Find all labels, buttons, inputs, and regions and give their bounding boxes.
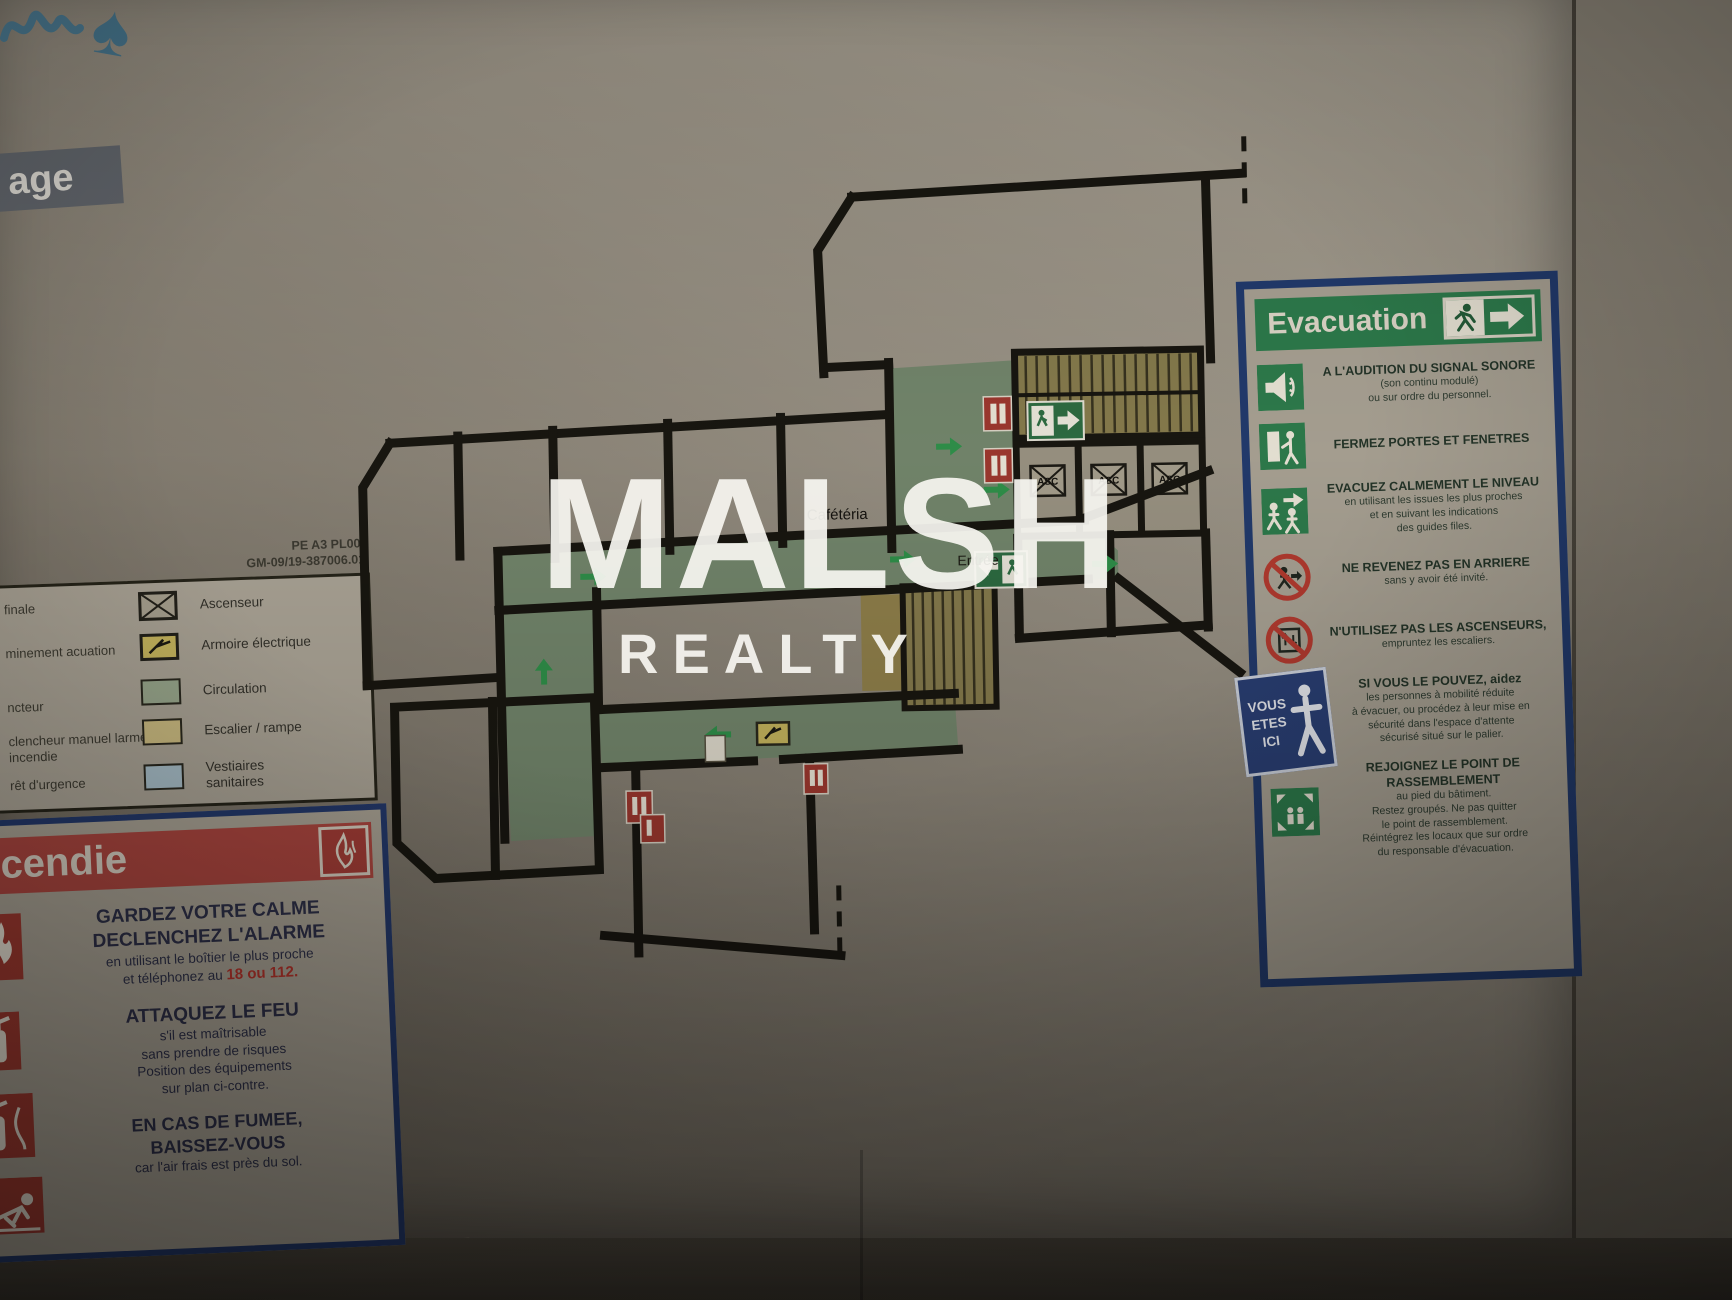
legend-item-ascenseur: Ascenseur xyxy=(137,585,320,621)
fire-s1-body2-text: et téléphonez au xyxy=(123,968,223,987)
exit-running-man-icon xyxy=(1442,294,1535,339)
legend-left-fragment: minement acuation xyxy=(5,641,155,662)
plan-small-label-box xyxy=(705,735,725,761)
legend-item-escalier: Escalier / rampe xyxy=(142,713,325,745)
room-label-cafeteria: Cafétéria xyxy=(807,506,869,524)
legend-left-fragment: finale xyxy=(4,597,154,618)
evac-item-heading: FERMEZ PORTES ET FENETRES xyxy=(1315,429,1547,453)
evac-item-no-elevator: N'UTILISEZ PAS LES ASCENSEURS, empruntez… xyxy=(1263,606,1555,666)
floor-plan: ASC ASC ASC xyxy=(322,110,1287,1006)
logo-squiggle xyxy=(4,15,80,38)
electrical-cabinet-icon xyxy=(139,632,180,661)
brand-logo-script: ♠ xyxy=(0,0,190,72)
floor-label-tab: age xyxy=(0,145,124,212)
crawl-low-icon xyxy=(0,1176,47,1237)
you-are-here-sign: VOUS ETES ICI xyxy=(1234,667,1338,777)
fire-extinguisher-flames-icon xyxy=(0,1093,37,1161)
evac-item-no-return: NE REVENEZ PAS EN ARRIERE sans y avoir é… xyxy=(1261,543,1553,603)
legend-item-circulation: Circulation xyxy=(140,673,323,705)
evacuate-people-icon xyxy=(1261,487,1309,535)
evac-item-evacuate: EVACUEZ CALMEMENT LE NIVEAU en utilisant… xyxy=(1259,473,1551,540)
legend-item-armoire: Armoire électrique xyxy=(139,627,322,661)
evac-item-assembly-point: REJOIGNEZ LE POINT DE RASSEMBLEMENT au p… xyxy=(1269,753,1562,864)
legend-left-fragment: ncteur xyxy=(7,695,157,716)
circulation-swatch xyxy=(140,678,181,705)
no-elevator-icon xyxy=(1263,614,1315,666)
plan-legend: finale minement acuation ncteur clencheu… xyxy=(0,573,378,816)
fire-panel-title: cendie xyxy=(0,838,128,888)
alarm-speaker-icon xyxy=(1257,364,1305,412)
close-door-icon xyxy=(1259,423,1307,471)
legend-item-vestiaires: Vestiaires sanitaires xyxy=(143,755,326,794)
fire-phone-numbers: 18 ou 112. xyxy=(226,963,298,983)
room-label-entree: Entrée xyxy=(957,552,999,569)
fire-instructions-panel: cendie GARDEZ VOTRE CALME DECLENCHEZ L'A… xyxy=(0,803,405,1263)
evac-item-signal: A L'AUDITION DU SIGNAL SONORE (son conti… xyxy=(1255,355,1546,411)
sanitary-swatch xyxy=(143,763,184,790)
logo-spade-icon: ♠ xyxy=(86,0,138,72)
plan-exit-sign-right xyxy=(1027,401,1084,440)
svg-text:ASC: ASC xyxy=(1037,477,1058,488)
evacuation-panel-title: Evacuation xyxy=(1255,302,1444,343)
flame-icon xyxy=(318,825,370,877)
legend-left-fragment: clencheur manuel larme incendie xyxy=(8,729,159,767)
fire-panel-body: GARDEZ VOTRE CALME DECLENCHEZ L'ALARME e… xyxy=(40,894,386,1181)
legend-left-fragment: rêt d'urgence xyxy=(10,773,160,794)
plan-ramp-area xyxy=(861,594,907,691)
elevator-icon: ASC xyxy=(1030,465,1065,496)
wall-seam-line xyxy=(860,1150,863,1300)
evacuation-items: A L'AUDITION DU SIGNAL SONORE (son conti… xyxy=(1255,355,1563,876)
elevator-icon: ASC xyxy=(1091,464,1126,495)
floor-label: age xyxy=(7,157,75,203)
evacuation-instructions-panel: Evacuation A L'AUDITION DU SIGNAL SONORE… xyxy=(1236,271,1582,988)
evac-item-close-doors: FERMEZ PORTES ET FENETRES xyxy=(1257,414,1548,470)
elevator-icon xyxy=(137,590,178,621)
plan-electrical-cabinet-icon xyxy=(757,722,789,745)
evacuation-panel-header: Evacuation xyxy=(1254,289,1542,351)
stairs-swatch xyxy=(142,718,183,745)
fire-alarm-icon xyxy=(0,911,28,985)
no-return-icon xyxy=(1261,552,1313,604)
assembly-point-icon xyxy=(1271,788,1321,838)
fire-extinguisher-icon xyxy=(0,1011,24,1073)
svg-text:ASC: ASC xyxy=(1098,476,1119,487)
fire-panel-header: cendie xyxy=(0,822,373,894)
